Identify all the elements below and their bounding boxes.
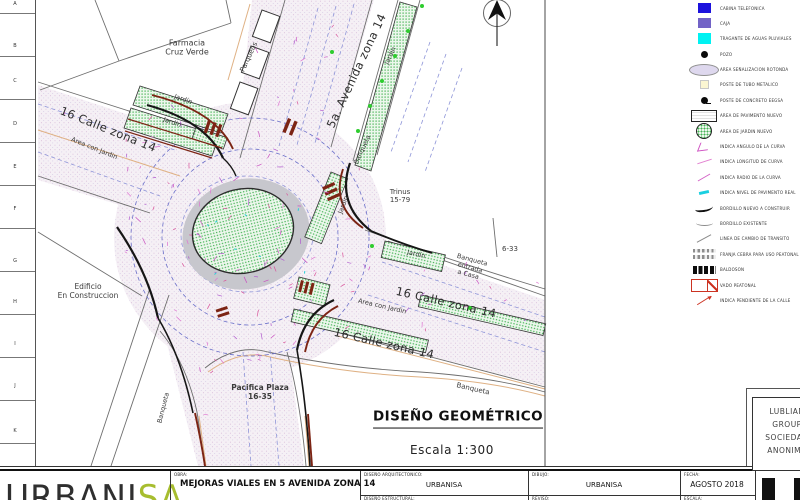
legend-item: BALDOSON xyxy=(688,265,800,275)
radio-swatch-icon xyxy=(698,173,711,181)
grid-tick xyxy=(0,271,35,272)
site-plan-drawing xyxy=(0,0,800,466)
legend-item: LINEA DE CAMBIO DE TRANSITO xyxy=(688,234,800,244)
grid-tick xyxy=(0,443,35,444)
legend-item: INDICA PENDIENTE DE LA CALLE xyxy=(688,295,800,305)
field-label: DISEÑO ESTRUCTURAL: xyxy=(364,496,415,500)
grid-row-label: C xyxy=(0,78,30,84)
legend-item: INDICA ANGULO DE LA CURVA xyxy=(688,142,800,152)
bordillo-exist-swatch-icon xyxy=(696,220,713,226)
grid-row-label: E xyxy=(0,164,30,170)
stamp-text: LUBLIAN xyxy=(753,405,800,418)
grid-row-label: B xyxy=(0,43,30,49)
legend-item: BORDILLO NUEVO A CONSTRUIR xyxy=(688,203,800,213)
legend-item: POZO xyxy=(688,49,800,59)
pozo-swatch-icon xyxy=(701,51,708,58)
legend-label: POSTE DE CONCRETO EEGSA xyxy=(720,98,783,103)
legend-label: CABINA TELEFONICA xyxy=(720,6,765,11)
grid-tick xyxy=(0,56,35,57)
field-label: DISEÑO ARQUITECTONICO: xyxy=(364,472,423,477)
legend-label: AREA DE PAVIMENTO NUEVO xyxy=(720,113,782,118)
legend-label: INDICA RADIO DE LA CURVA xyxy=(720,175,781,180)
legend-label: BORDILLO NUEVO A CONSTRUIR xyxy=(720,206,790,211)
stamp-text: ANONIMA xyxy=(753,444,800,457)
tragante-swatch-icon xyxy=(698,33,711,44)
legend-label: POZO xyxy=(720,52,732,57)
divider xyxy=(755,471,756,500)
legend-label: INDICA PENDIENTE DE LA CALLE xyxy=(720,298,791,303)
grid-tick xyxy=(0,357,35,358)
rotonda-swatch-icon xyxy=(689,64,719,76)
legend-item: CAJA xyxy=(688,18,800,28)
drawing-sheet: ABCDEFGHIJK Farmacia Cruz Verde Parqueos… xyxy=(0,0,800,500)
grid-row-label: H xyxy=(0,299,30,305)
field-label: DIBUJO: xyxy=(532,472,549,477)
pavimento-swatch-icon xyxy=(691,110,717,122)
legend-item: AREA SEÑALIZACION ROTONDA xyxy=(688,65,800,75)
grid-row-label: F xyxy=(0,206,30,212)
field-value: URBANISA xyxy=(532,481,676,489)
legend-item: INDICA LONGITUD DE CURVA xyxy=(688,157,800,167)
legend-label: BALDOSON xyxy=(720,267,744,272)
stamp-frame-line xyxy=(746,388,747,466)
grid-row-label: D xyxy=(0,121,30,127)
grid-row-label: K xyxy=(0,428,30,434)
baldoson-swatch-icon xyxy=(693,266,716,274)
legend-item: INDICA NIVEL DE PAVIMENTO REAL xyxy=(688,188,800,198)
stamp-logo-bar xyxy=(762,478,775,500)
grid-row-label: I xyxy=(0,341,30,347)
field-value: AGOSTO 2018 xyxy=(682,480,752,489)
field-label: FECHA: xyxy=(684,472,700,477)
urbanisa-logo: URBANISA xyxy=(5,477,184,500)
field-value: URBANISA xyxy=(364,481,524,489)
legend-item: TRAGANTE DE AGUAS PLUVIALES xyxy=(688,34,800,44)
legend-item: CABINA TELEFONICA xyxy=(688,3,800,13)
grid-tick xyxy=(0,99,35,100)
logo-part1: URBANI xyxy=(5,477,138,500)
cabina-swatch-icon xyxy=(698,3,711,13)
legend-label: FRANJA CEBRA PARA USO PEATONAL xyxy=(720,252,799,257)
angulo-swatch-icon xyxy=(697,141,711,151)
grid-tick xyxy=(0,314,35,315)
divider xyxy=(170,471,171,500)
grid-tick xyxy=(0,185,35,186)
longitud-swatch-icon xyxy=(697,159,712,165)
vado-swatch-icon xyxy=(691,279,718,292)
field-label: REVISO: xyxy=(532,496,550,500)
obra-value: MEJORAS VIALES EN 5 AVENIDA ZONA 14 xyxy=(180,479,352,489)
pendiente-swatch-icon xyxy=(697,296,711,305)
legend: CABINA TELEFONICACAJATRAGANTE DE AGUAS P… xyxy=(688,3,800,311)
legend-label: POSTE DE TUBO METALICO xyxy=(720,82,778,87)
legend-label: VADO PEATONAL xyxy=(720,283,756,288)
stamp-logo-bar xyxy=(794,478,800,500)
stamp-text: SOCIEDAD xyxy=(753,431,800,444)
nivel-swatch-icon xyxy=(699,190,709,195)
bordillo-nuevo-swatch-icon xyxy=(695,203,714,213)
owner-stamp: LUBLIAN GROUP SOCIEDAD ANONIMA xyxy=(752,397,800,471)
legend-item: AREA DE JARDIN NUEVO xyxy=(688,126,800,136)
field-label: ESCALA: xyxy=(684,496,702,500)
legend-item: POSTE DE TUBO METALICO xyxy=(688,80,800,90)
grid-ruler: ABCDEFGHIJK xyxy=(0,0,36,466)
poste-metal-swatch-icon xyxy=(700,80,709,89)
grid-row-label: A xyxy=(0,1,30,7)
legend-item: FRANJA CEBRA PARA USO PEATONAL xyxy=(688,249,800,259)
legend-label: LINEA DE CAMBIO DE TRANSITO xyxy=(720,236,790,241)
legend-item: POSTE DE CONCRETO EEGSA xyxy=(688,95,800,105)
title-block: URBANISA OBRA: MEJORAS VIALES EN 5 AVENI… xyxy=(0,466,800,500)
legend-label: TRAGANTE DE AGUAS PLUVIALES xyxy=(720,36,792,41)
grid-tick xyxy=(0,13,35,14)
grid-tick xyxy=(0,142,35,143)
grid-tick xyxy=(0,228,35,229)
legend-item: VADO PEATONAL xyxy=(688,280,800,290)
legend-label: CAJA xyxy=(720,21,730,26)
legend-label: INDICA LONGITUD DE CURVA xyxy=(720,159,783,164)
stamp-frame-line xyxy=(746,388,800,389)
legend-item: INDICA RADIO DE LA CURVA xyxy=(688,172,800,182)
cebra-swatch-icon xyxy=(693,249,716,259)
linea-cambio-swatch-icon xyxy=(697,235,712,243)
legend-label: BORDILLO EXISTENTE xyxy=(720,221,767,226)
north-compass-icon xyxy=(484,0,511,46)
logo-part2: SA xyxy=(138,477,184,500)
legend-label: AREA DE JARDIN NUEVO xyxy=(720,129,772,134)
legend-label: INDICA ANGULO DE LA CURVA xyxy=(720,144,785,149)
legend-item: BORDILLO EXISTENTE xyxy=(688,218,800,228)
grid-tick xyxy=(0,400,35,401)
grid-row-label: J xyxy=(0,383,30,389)
obra-label: OBRA: xyxy=(174,472,188,477)
legend-label: INDICA NIVEL DE PAVIMENTO REAL xyxy=(720,190,796,195)
poste-concreto-swatch-icon xyxy=(701,97,708,104)
legend-item: AREA DE PAVIMENTO NUEVO xyxy=(688,111,800,121)
caja-swatch-icon xyxy=(698,18,711,28)
legend-label: AREA SEÑALIZACION ROTONDA xyxy=(720,67,788,72)
grid-row-label: G xyxy=(0,258,30,264)
jardin-nuevo-swatch-icon xyxy=(696,123,712,139)
stamp-text: GROUP xyxy=(753,418,800,431)
